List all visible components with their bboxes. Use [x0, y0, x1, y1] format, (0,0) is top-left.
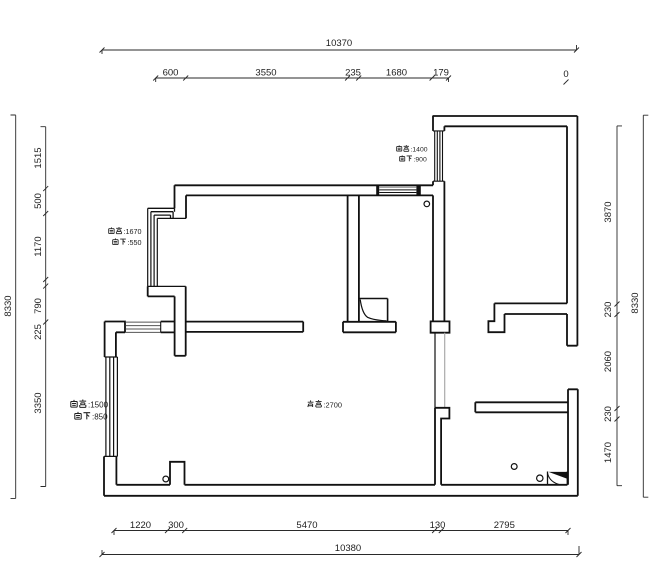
svg-text:300: 300	[168, 520, 184, 531]
svg-text:10370: 10370	[326, 38, 352, 49]
svg-text:1680: 1680	[386, 68, 407, 79]
svg-text:225: 225	[33, 324, 44, 340]
svg-text::550: :550	[128, 238, 142, 247]
svg-text:2060: 2060	[603, 351, 614, 372]
svg-text:10380: 10380	[335, 543, 361, 554]
svg-text:3350: 3350	[33, 392, 44, 413]
svg-text:1515: 1515	[33, 147, 44, 168]
svg-text:3870: 3870	[603, 201, 614, 222]
svg-text:8330: 8330	[630, 292, 641, 313]
svg-text:600: 600	[163, 68, 179, 79]
svg-text:8330: 8330	[3, 295, 14, 316]
svg-text::2700: :2700	[324, 401, 343, 410]
svg-text:1470: 1470	[603, 442, 614, 463]
svg-text::900: :900	[414, 157, 427, 164]
svg-text:0: 0	[563, 69, 568, 80]
svg-text:179: 179	[433, 68, 449, 79]
svg-text::1670: :1670	[124, 227, 142, 236]
svg-text::1500: :1500	[88, 401, 109, 410]
svg-text::850: :850	[92, 413, 108, 422]
svg-text:5470: 5470	[296, 520, 317, 531]
svg-text:230: 230	[603, 406, 614, 422]
svg-text:3550: 3550	[255, 68, 276, 79]
svg-text:1170: 1170	[33, 236, 44, 256]
svg-text:1220: 1220	[130, 520, 151, 531]
svg-text:2795: 2795	[494, 520, 515, 531]
svg-text:235: 235	[345, 68, 361, 79]
svg-text:790: 790	[33, 298, 44, 314]
svg-text:130: 130	[430, 520, 446, 531]
svg-text::1400: :1400	[411, 147, 428, 154]
svg-text:230: 230	[603, 302, 614, 318]
svg-text:500: 500	[33, 193, 44, 209]
